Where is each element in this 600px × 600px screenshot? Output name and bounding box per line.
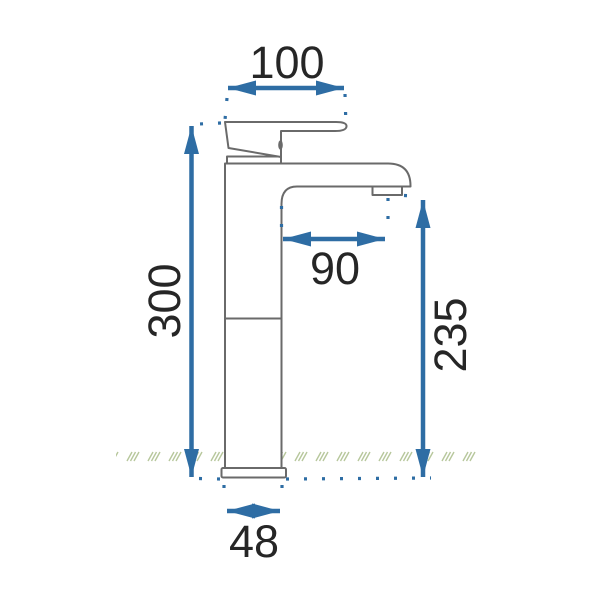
base-flange bbox=[222, 468, 287, 478]
leader-total-height-bottom bbox=[198, 479, 220, 480]
faucet-body-and-spout bbox=[225, 164, 411, 469]
dimension-labels: 100 300 90 235 48 bbox=[139, 37, 476, 567]
leader-total-height-top bbox=[199, 123, 221, 124]
escutcheon-ring bbox=[227, 157, 281, 164]
faucet-outline bbox=[222, 122, 411, 478]
ground-hatch-line bbox=[116, 451, 480, 462]
dim-label-outlet-height: 235 bbox=[425, 297, 476, 372]
dim-label-total-height: 300 bbox=[139, 263, 190, 338]
dim-label-top-width: 100 bbox=[249, 37, 324, 88]
leader-base-level-row bbox=[286, 478, 431, 479]
leader-outlet-height-top bbox=[404, 196, 419, 197]
set-screw-detail bbox=[278, 140, 283, 150]
aerator-outlet bbox=[373, 187, 403, 196]
leader-top-width-right bbox=[345, 94, 346, 127]
dim-label-base-width: 48 bbox=[229, 516, 279, 567]
technical-drawing-canvas: 100 300 90 235 48 bbox=[0, 0, 600, 600]
lever-handle bbox=[225, 122, 347, 157]
leader-top-width-left bbox=[225, 98, 227, 120]
faucet-dimension-diagram: 100 300 90 235 48 bbox=[0, 0, 600, 600]
dim-label-spout-reach: 90 bbox=[310, 243, 360, 294]
